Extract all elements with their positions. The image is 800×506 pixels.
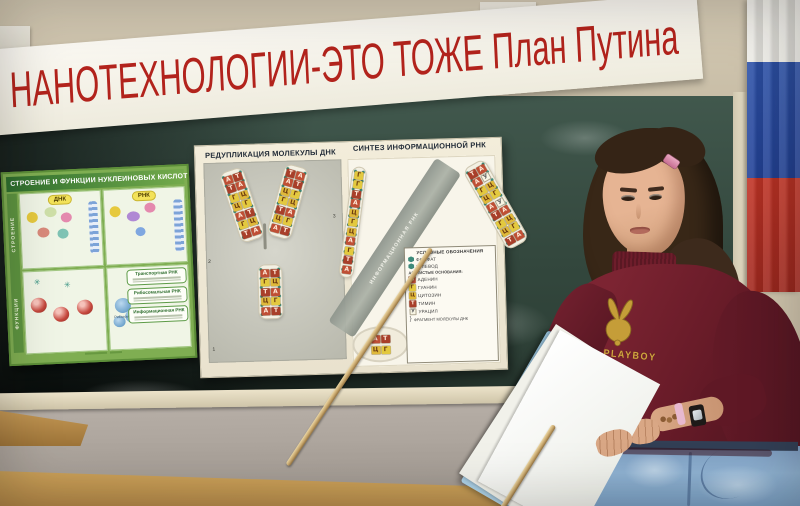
dnk-label: ДНК: [48, 194, 73, 205]
replication-sphere: [77, 300, 94, 316]
dna-helix-icon: [88, 201, 99, 253]
dna-strand-left: АТТАГЦЦГАТГЦТА: [220, 167, 265, 243]
flag-folds: [747, 0, 800, 292]
molecule-icon: [109, 206, 120, 217]
poster-nucleic-acids: СТРОЕНИЕ И ФУНКЦИИ НУКЛЕИНОВЫХ КИСЛОТ СТ…: [1, 164, 198, 366]
classroom-photo: НАНОТЕХНОЛОГИИ-ЭТО ТОЖЕ План Путина СТРО…: [0, 0, 800, 506]
rnk-label: РНК: [132, 190, 156, 201]
dna-strand-stem: АТГЦТАЦГАТ: [258, 265, 282, 319]
molecule-icon: [127, 211, 140, 222]
replication-title: РЕДУПЛИКАЦИЯ МОЛЕКУЛЫ ДНК: [205, 147, 336, 160]
brace-icon: }: [410, 316, 412, 322]
replication-fork-mark: [263, 223, 267, 249]
diagram-number: 1: [212, 347, 215, 353]
rna-strand-icon: [173, 199, 184, 251]
molecule-icon: [37, 227, 49, 238]
molecule-icon: [57, 228, 68, 238]
poster-dna-replication: РЕДУПЛИКАЦИЯ МОЛЕКУЛЫ ДНК СИНТЕЗ ИНФОРМА…: [194, 137, 508, 379]
playboy-bunny-icon: [598, 295, 640, 350]
diagram-number: 3: [333, 213, 336, 219]
trna-icon: ✳: [34, 278, 41, 287]
molecule-icon: [27, 212, 38, 223]
sugar-phosphate-icon: [408, 256, 414, 262]
eye: [621, 195, 635, 201]
rna-function-cell: Рибосома Транспортная РНК Рибосомальная …: [106, 264, 192, 350]
rna-type-box: Информационная РНК: [128, 305, 189, 324]
replication-sphere: [30, 298, 47, 314]
nose: [636, 203, 641, 219]
dna-structure-cell: ДНК: [19, 190, 104, 270]
molecule-icon: [44, 207, 56, 218]
dna-strand-right: ТААТЦГГЦТАЦГАТ: [267, 164, 308, 240]
molecule-icon: [135, 227, 145, 236]
row-label-function: ФУНКЦИИ: [13, 298, 20, 330]
trna-icon: ✳: [64, 281, 71, 290]
rna-type-box: Транспортная РНК: [126, 267, 187, 286]
legend-footer-row: } ФРАГМЕНТ МОЛЕКУЛЫ ДНК: [410, 314, 494, 322]
template-strand: ГГТАЦГЦАГТА: [339, 167, 366, 278]
rna-type-box: Рибосомальная РНК: [127, 286, 188, 305]
synthesis-title: СИНТЕЗ ИНФОРМАЦИОННОЙ РНК: [353, 140, 486, 153]
replication-diagram: АТТАГЦЦГАТГЦТА ТААТЦГГЦТАЦГАТ АТГЦТАЦГАТ…: [203, 159, 347, 363]
row-label-structure: СТРОЕНИЕ: [10, 217, 18, 253]
replication-sphere: [53, 307, 70, 323]
rna-structure-cell: РНК: [103, 186, 188, 266]
legend-bases: ААДЕНИН ГГУАНИН ЦЦИТОЗИН ТТИМИН УУРАЦИЛ: [409, 274, 494, 315]
legend-footer: ФРАГМЕНТ МОЛЕКУЛЫ ДНК: [414, 315, 468, 322]
russian-flag: [747, 0, 800, 292]
molecule-icon: [61, 212, 72, 222]
molecule-icon: [144, 202, 155, 212]
watch-face: [692, 409, 703, 420]
rna-type-list: Транспортная РНК Рибосомальная РНК Инфор…: [126, 267, 188, 324]
diagram-number: 2: [208, 259, 211, 265]
dna-function-cell: ✳ ✳: [22, 268, 108, 354]
